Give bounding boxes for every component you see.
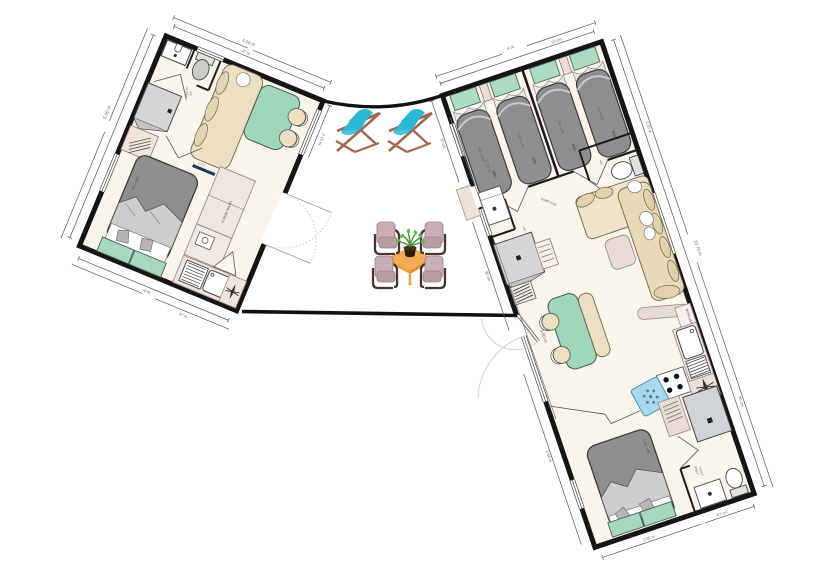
- svg-text:2.60 m: 2.60 m: [545, 450, 554, 464]
- svg-text:47 m: 47 m: [178, 311, 189, 319]
- svg-text:4 m: 4 m: [142, 288, 151, 296]
- svg-text:46 cm: 46 cm: [737, 395, 745, 408]
- svg-text:4 m: 4 m: [506, 44, 515, 51]
- svg-text:2.55 m: 2.55 m: [642, 534, 656, 543]
- svg-text:36 cm: 36 cm: [484, 270, 492, 283]
- svg-text:2.10 m: 2.10 m: [317, 133, 327, 147]
- svg-text:97 cm: 97 cm: [716, 509, 729, 517]
- svg-text:10.70 m: 10.70 m: [693, 239, 703, 256]
- svg-text:WC: WC: [189, 91, 193, 96]
- svg-text:70 cm: 70 cm: [439, 137, 447, 150]
- svg-text:47 m: 47 m: [241, 48, 252, 56]
- svg-text:2.20 m: 2.20 m: [645, 121, 654, 135]
